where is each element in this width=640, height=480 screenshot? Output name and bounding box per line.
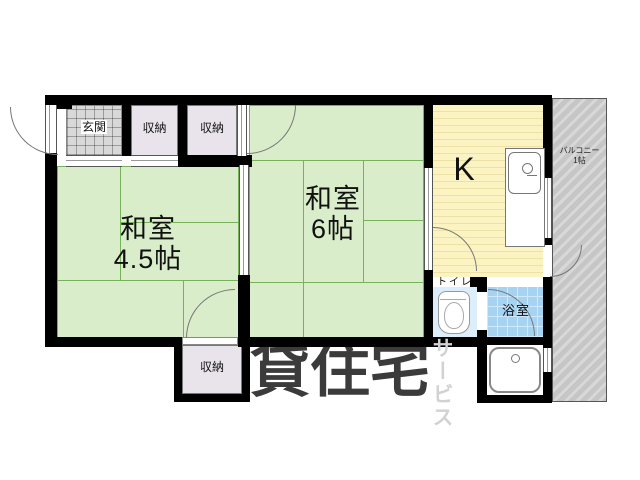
wall: [238, 275, 250, 337]
kitchen-sliding-door: [424, 168, 433, 270]
toilet-tank-line: [440, 299, 466, 300]
wall: [178, 105, 187, 156]
wall: [45, 153, 57, 347]
wall: [122, 105, 131, 156]
washitsu-45-size: 4.5帖: [68, 244, 228, 274]
wall: [45, 337, 182, 347]
wall: [543, 372, 552, 403]
bath-door-opening: [477, 292, 487, 330]
genkan-label-text: 玄関: [81, 120, 107, 134]
floorplan-canvas: 賃貸住宅: [0, 0, 640, 480]
faucet-icon: [522, 163, 533, 174]
washitsu-6-size: 6帖: [258, 214, 408, 244]
washitsu-6-name: 和室: [258, 184, 408, 214]
bath-window: [543, 348, 552, 372]
closet-top-2-label: 収納: [187, 122, 237, 135]
toilet-bowl: [444, 302, 464, 329]
wall: [477, 395, 552, 403]
genkan-step: [66, 155, 122, 167]
genkan-label: 玄関: [66, 121, 122, 134]
tatami-line: [57, 280, 239, 281]
watermark-sub-text: サービス: [426, 337, 456, 429]
closet-sliding-door: [131, 155, 178, 167]
balcony-label-line2: 1帖: [552, 156, 607, 166]
wall: [57, 95, 72, 109]
kitchen-label: K: [433, 152, 495, 188]
washitsu-45-label: 和室 4.5帖: [68, 214, 228, 274]
faucet-spout: [527, 175, 537, 176]
tatami-line: [249, 282, 424, 283]
bath-label: 浴室: [495, 304, 537, 319]
wall: [543, 277, 552, 348]
toilet-label: トイレ: [431, 277, 479, 288]
wall: [424, 105, 433, 168]
balcony-label-line1: バルコニー: [552, 146, 607, 156]
washitsu-6-label: 和室 6帖: [258, 184, 408, 244]
wall: [174, 394, 250, 402]
door-leaf: [237, 105, 247, 156]
wall: [477, 337, 552, 345]
fusuma-sliding-door: [239, 165, 249, 275]
wall: [242, 337, 250, 402]
entrance-door-arc: [10, 107, 58, 155]
wall: [45, 95, 552, 105]
washitsu-45-name: 和室: [68, 214, 228, 244]
balcony-label: バルコニー 1帖: [552, 146, 607, 167]
bathtub-drain: [511, 354, 520, 363]
tatami-line: [183, 280, 184, 337]
closet-top-1-label: 収納: [131, 122, 178, 135]
closet-bottom-label: 収納: [182, 361, 242, 374]
wall: [174, 337, 182, 402]
room-door-threshold: [182, 337, 238, 345]
tatami-line: [249, 160, 424, 161]
